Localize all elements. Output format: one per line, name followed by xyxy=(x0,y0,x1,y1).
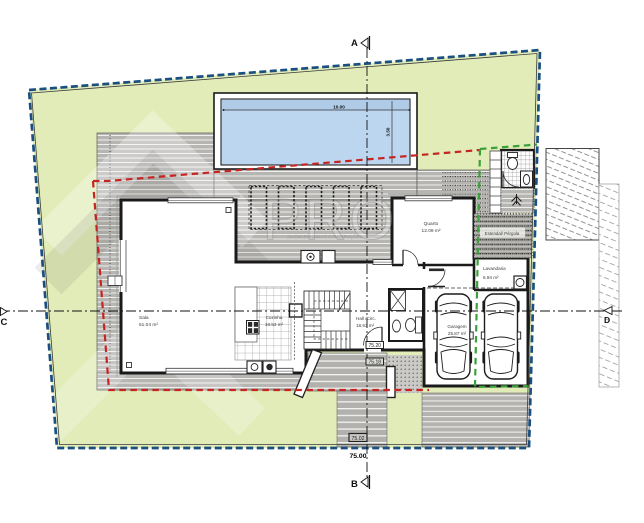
svg-text:ZN ENGENHARIA E CONSTRUÇÕES: ZN ENGENHARIA E CONSTRUÇÕES xyxy=(287,235,362,240)
svg-text:Quarto: Quarto xyxy=(424,221,439,227)
svg-text:A: A xyxy=(351,38,358,49)
svg-text:B: B xyxy=(351,479,358,490)
svg-text:PRO: PRO xyxy=(263,187,398,252)
svg-text:75.18: 75.18 xyxy=(369,360,382,366)
svg-text:3.50: 3.50 xyxy=(386,127,391,136)
svg-text:18.53 m²: 18.53 m² xyxy=(265,322,284,327)
svg-text:Hall /Circ.: Hall /Circ. xyxy=(356,316,376,321)
svg-text:Sala: Sala xyxy=(139,315,149,321)
svg-text:10.00: 10.00 xyxy=(333,105,345,110)
svg-text:75.02: 75.02 xyxy=(352,436,365,442)
svg-text:75.00: 75.00 xyxy=(349,453,366,460)
svg-text:C: C xyxy=(1,317,8,328)
svg-text:6.94 m²: 6.94 m² xyxy=(483,275,499,280)
svg-text:Cozinha: Cozinha xyxy=(266,315,283,320)
svg-text:Lavandaria: Lavandaria xyxy=(483,266,506,271)
svg-text:25.87 m²: 25.87 m² xyxy=(448,331,467,336)
svg-text:12.09 m²: 12.09 m² xyxy=(422,228,441,234)
svg-text:75.20: 75.20 xyxy=(369,343,382,349)
svg-text:D: D xyxy=(604,315,610,325)
svg-text:18.53 m²: 18.53 m² xyxy=(356,323,375,328)
svg-text:51.04 m²: 51.04 m² xyxy=(139,322,158,328)
svg-text:Estendal/ Pérgola: Estendal/ Pérgola xyxy=(485,231,520,236)
svg-text:Garagem: Garagem xyxy=(447,324,466,329)
